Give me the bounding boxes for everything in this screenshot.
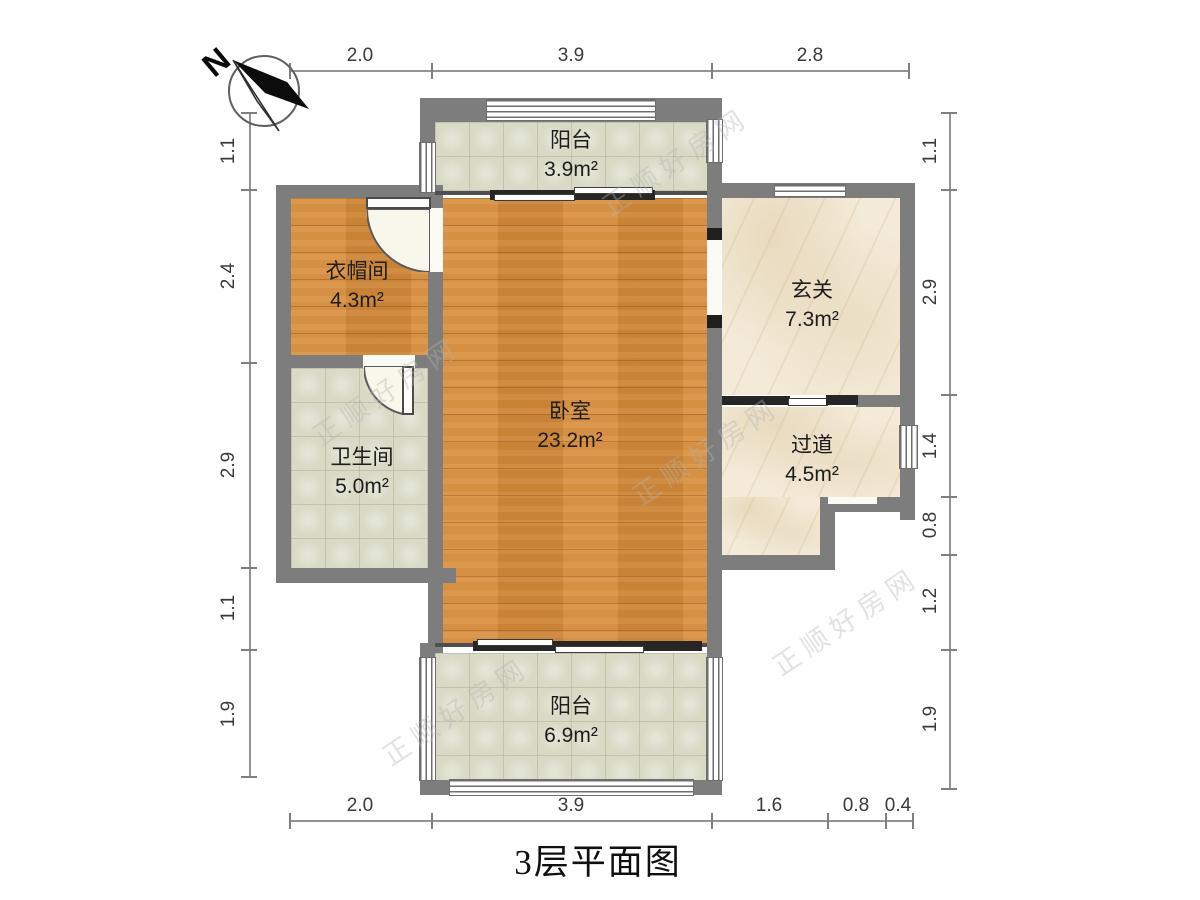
window xyxy=(420,658,435,780)
sliding-door-panel xyxy=(555,646,644,653)
compass: N xyxy=(195,25,325,145)
dimension-tick xyxy=(241,189,257,191)
dimension-tick xyxy=(431,813,433,829)
door-leaf xyxy=(402,366,414,415)
wall xyxy=(415,355,428,368)
dimension-label: 0.8 xyxy=(843,795,869,817)
wall xyxy=(276,185,291,583)
watermark: 正顺好房网 xyxy=(764,556,927,683)
window xyxy=(775,185,845,196)
room-area: 7.3m² xyxy=(785,305,839,334)
dimension-label: 0.8 xyxy=(920,512,942,538)
dimension-label: 2.8 xyxy=(797,45,823,67)
wall xyxy=(428,568,443,653)
dimension-tick xyxy=(941,394,957,396)
floor-corridor-lower xyxy=(720,497,820,555)
dimension-label: 2.0 xyxy=(347,45,373,67)
door-jamb xyxy=(707,315,722,328)
room-name: 玄关 xyxy=(785,276,839,305)
dimension-tick xyxy=(241,649,257,651)
sliding-door-panel xyxy=(574,187,653,194)
floor-plan: 阳台 3.9m² 衣帽间 4.3m² 卫生间 5.0m² 卧室 23.2m² 玄… xyxy=(0,0,1200,900)
dimension-label: 1.9 xyxy=(920,706,942,732)
dimension-tick xyxy=(431,63,433,79)
wall xyxy=(288,355,363,368)
window xyxy=(900,426,917,468)
dimension-label: 2.4 xyxy=(218,263,240,289)
dimension-tick xyxy=(711,63,713,79)
wall-opening xyxy=(828,497,877,504)
room-name: 阳台 xyxy=(544,126,598,155)
room-name: 阳台 xyxy=(544,692,598,721)
dimension-label: 1.1 xyxy=(920,138,942,164)
room-area: 4.3m² xyxy=(326,286,389,315)
dimension-tick xyxy=(241,567,257,569)
dimension-line xyxy=(949,113,951,790)
sliding-door xyxy=(826,395,858,405)
room-name: 卫生间 xyxy=(331,443,394,472)
dimension-label: 1.6 xyxy=(756,795,782,817)
room-name: 卧室 xyxy=(537,397,602,426)
dimension-label: 2.9 xyxy=(920,279,942,305)
room-label-cloakroom: 衣帽间 4.3m² xyxy=(326,257,389,315)
window xyxy=(707,658,722,780)
room-label-balcony-top: 阳台 3.9m² xyxy=(544,126,598,184)
room-area: 4.5m² xyxy=(785,460,839,489)
door-leaf xyxy=(366,197,431,209)
compass-north-label: N xyxy=(195,40,237,84)
dimension-tick xyxy=(908,63,910,79)
room-area: 6.9m² xyxy=(544,721,598,750)
dimension-tick xyxy=(912,813,914,829)
sliding-door-panel xyxy=(477,639,553,646)
dimension-tick xyxy=(941,189,957,191)
window xyxy=(707,120,722,162)
sliding-door xyxy=(722,396,790,405)
dimension-label: 1.1 xyxy=(218,595,240,621)
dimension-label: 0.4 xyxy=(885,795,911,817)
wall xyxy=(428,272,443,568)
dimension-tick xyxy=(289,813,291,829)
dimension-label: 3.9 xyxy=(558,795,584,817)
wall xyxy=(856,395,900,407)
room-label-balcony-bottom: 阳台 6.9m² xyxy=(544,692,598,750)
dimension-label: 1.9 xyxy=(218,701,240,727)
room-area: 3.9m² xyxy=(544,155,598,184)
room-area: 5.0m² xyxy=(331,472,394,501)
wall xyxy=(900,183,915,520)
doorway-opening xyxy=(707,240,722,315)
window xyxy=(420,143,435,192)
window xyxy=(450,780,693,795)
room-area: 23.2m² xyxy=(537,426,602,455)
door-jamb xyxy=(707,228,722,240)
dimension-label: 1.2 xyxy=(920,588,942,614)
doorway-opening xyxy=(428,208,443,272)
sliding-door-panel xyxy=(788,398,828,406)
room-name: 过道 xyxy=(785,431,839,460)
dimension-tick xyxy=(241,362,257,364)
dimension-tick xyxy=(941,112,957,114)
room-label-bedroom: 卧室 23.2m² xyxy=(537,397,602,455)
page-title: 3层平面图 xyxy=(514,834,682,885)
wall xyxy=(707,555,835,570)
dimension-label: 2.9 xyxy=(218,452,240,478)
dimension-tick xyxy=(941,496,957,498)
room-label-bathroom: 卫生间 5.0m² xyxy=(331,443,394,501)
dimension-label: 2.0 xyxy=(347,795,373,817)
room-name: 衣帽间 xyxy=(326,257,389,286)
dimension-tick xyxy=(941,554,957,556)
dimension-tick xyxy=(711,813,713,829)
room-label-entry: 玄关 7.3m² xyxy=(785,276,839,334)
dimension-tick xyxy=(241,776,257,778)
window xyxy=(487,100,655,120)
room-label-corridor: 过道 4.5m² xyxy=(785,431,839,489)
dimension-line xyxy=(290,70,910,72)
dimension-label: 1.4 xyxy=(920,433,942,459)
dimension-tick xyxy=(941,649,957,651)
dimension-line xyxy=(249,113,251,778)
dimension-tick xyxy=(941,788,957,790)
dimension-line xyxy=(290,820,914,822)
dimension-label: 3.9 xyxy=(558,45,584,67)
dimension-tick xyxy=(827,813,829,829)
sliding-door-panel xyxy=(494,194,575,201)
